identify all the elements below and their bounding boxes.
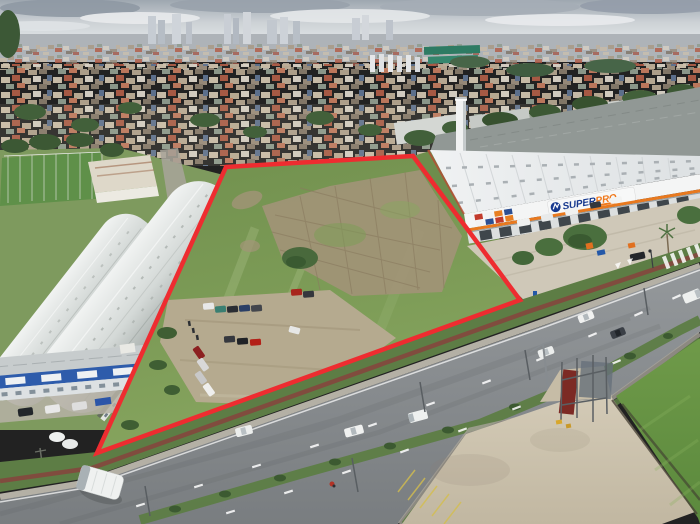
stain [430, 454, 510, 486]
lot-tree-shadow [286, 256, 306, 268]
equipment [566, 424, 572, 429]
aerial-photo-canvas: SUPER PRO [0, 0, 700, 524]
white-shed [88, 155, 159, 203]
white-tank [49, 432, 65, 442]
aerial-photo: SUPER PRO [0, 0, 700, 524]
chimney [455, 97, 467, 153]
white-tank [62, 439, 78, 449]
sports-field [0, 152, 108, 206]
dirt-spot [240, 240, 260, 252]
stain [530, 428, 590, 452]
